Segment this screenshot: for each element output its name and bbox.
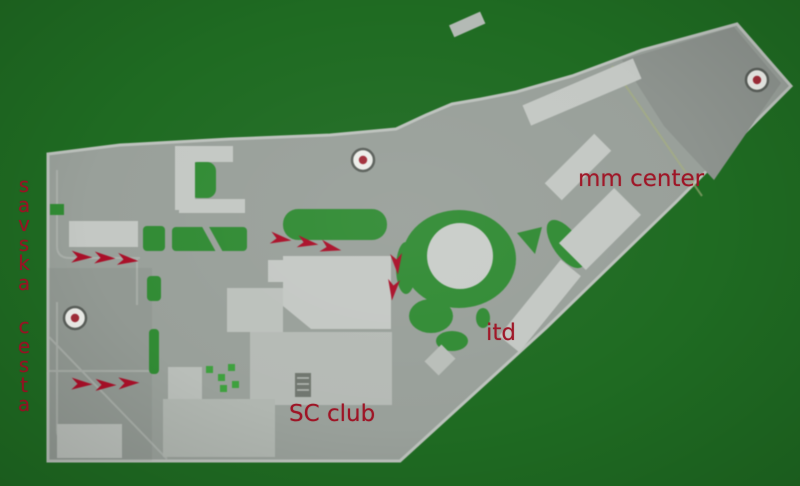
sc-club-label: SC club: [289, 401, 375, 427]
street-label-savska-cesta: savskacesta: [12, 176, 36, 415]
map-marker-icon: [352, 149, 374, 171]
mm-center-label: mm center: [578, 166, 704, 192]
site-plan-graphic: [0, 0, 800, 486]
street-letter: a: [18, 274, 30, 294]
map-marker-icon: [64, 307, 86, 329]
campus-map: savskacesta mm center itd SC club: [0, 0, 800, 486]
map-marker-icon: [746, 69, 768, 91]
sc-club-building: [250, 332, 392, 405]
stairs-detail: [295, 373, 311, 397]
street-letter: a: [18, 395, 30, 415]
itd-label: itd: [486, 320, 516, 346]
sc-main-building: [283, 256, 391, 329]
fountain: [427, 223, 493, 289]
